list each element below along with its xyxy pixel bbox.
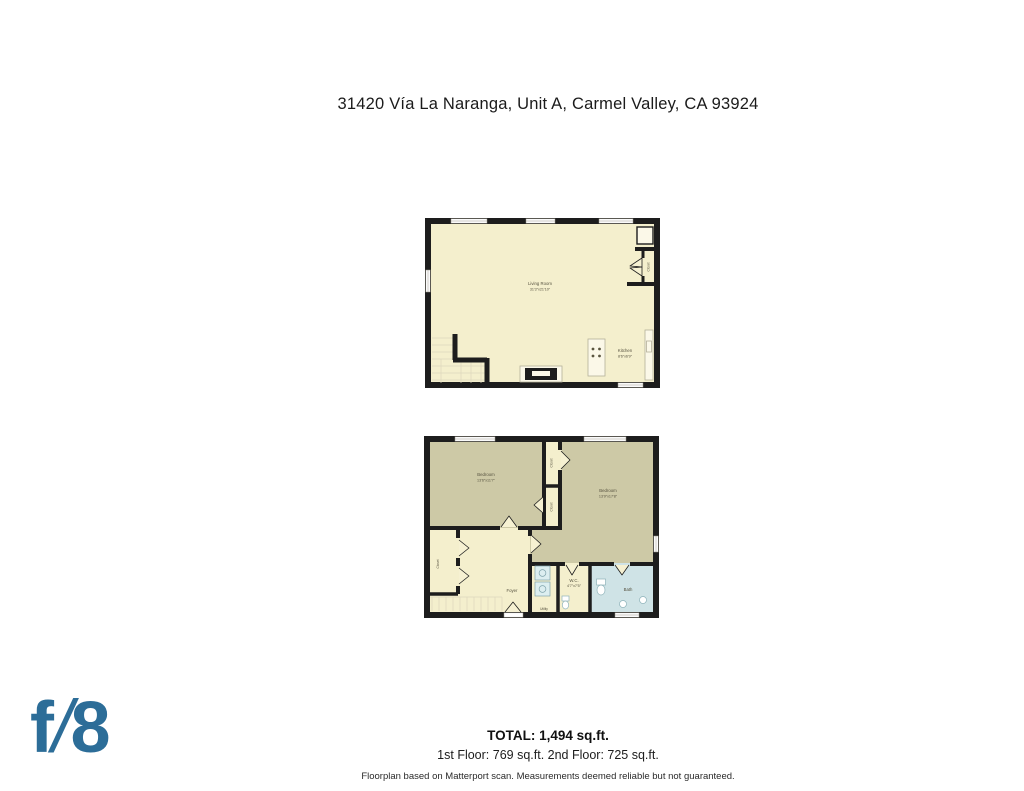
living-room-label: Living Room (528, 281, 552, 286)
kitchen-dims: 8'6"x6'9" (618, 355, 633, 359)
fireplace-icon (520, 366, 562, 382)
bath-label: Bath (624, 587, 633, 592)
disclaimer-text: Floorplan based on Matterport scan. Meas… (36, 771, 1024, 782)
closet-mid-label: Closet (550, 502, 554, 511)
bedroom-left-area (430, 442, 544, 528)
closet-top-label: Closet (550, 458, 554, 467)
utility-label: Utility (540, 607, 548, 611)
bedroom-right-label: Bedroom (599, 488, 617, 493)
wc-label: W.C. (569, 578, 578, 583)
foyer-label: Foyer (507, 588, 519, 593)
floorplan-page: 31420 Vía La Naranga, Unit A, Carmel Val… (0, 0, 1024, 791)
living-room-dims: 31'3"x21'10" (530, 288, 551, 292)
second-floor-plan: Bedroom 13'6"x11'7" Bedroom 13'9"x17'8" … (424, 436, 659, 618)
total-area-text: TOTAL: 1,494 sq.ft. (36, 728, 1024, 743)
page-title: 31420 Vía La Naranga, Unit A, Carmel Val… (36, 95, 1024, 114)
bedroom-left-dims: 13'6"x11'7" (477, 479, 496, 483)
kitchen-label: Kitchen (618, 348, 633, 353)
wc-dims: 4'7"x7'5" (567, 584, 582, 588)
bedroom-right-dims: 13'9"x17'8" (599, 495, 618, 499)
floor-areas-text: 1st Floor: 769 sq.ft. 2nd Floor: 725 sq.… (36, 748, 1024, 762)
appliance-icon (637, 227, 653, 244)
first-floor-plan: Living Room 31'3"x21'10" Kitchen 8'6"x6'… (425, 218, 660, 388)
closet-left-label: Closet (436, 559, 440, 568)
floor1-closet-label: Closet (647, 262, 651, 271)
bedroom-left-label: Bedroom (477, 472, 495, 477)
